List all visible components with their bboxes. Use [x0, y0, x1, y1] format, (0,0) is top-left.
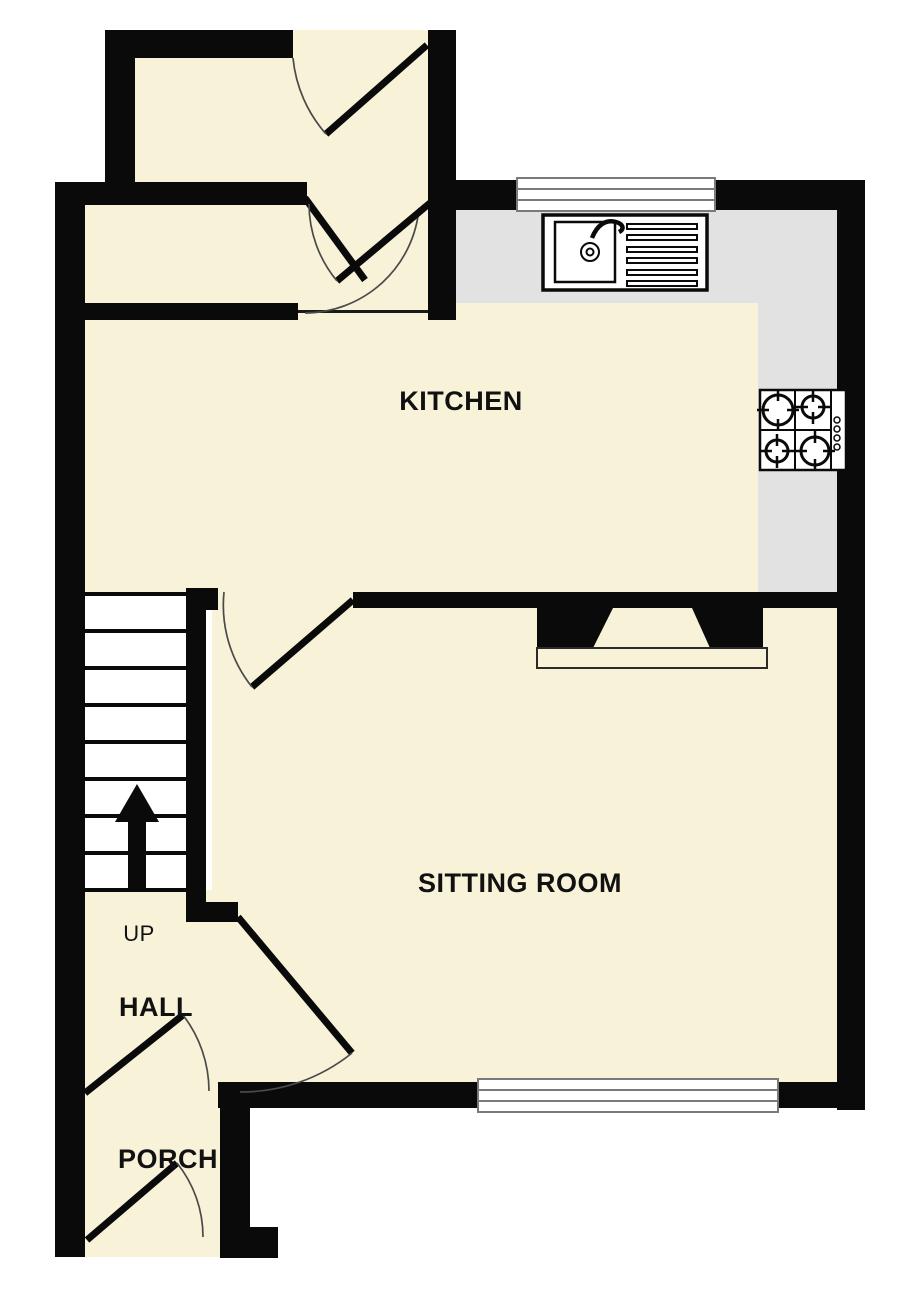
kitchen-window	[517, 178, 715, 211]
stairs-up-label: UP	[123, 921, 155, 946]
floorplan: KITCHEN SITTING ROOM HALL PORCH UP	[0, 0, 923, 1300]
room-label-sitting-room: SITTING ROOM	[418, 868, 622, 898]
four-burner-hob-icon	[757, 389, 846, 471]
room-label-hall: HALL	[119, 992, 193, 1022]
lobby-gap-floor	[307, 182, 428, 205]
floorplan-drawing: KITCHEN SITTING ROOM HALL PORCH UP	[0, 0, 923, 1300]
rear-door-gap-floor	[293, 30, 428, 58]
rear-room-floor	[135, 58, 428, 182]
hearth	[537, 648, 767, 668]
sink-with-drainer-icon	[543, 215, 707, 290]
staircase	[85, 592, 186, 892]
room-label-kitchen: KITCHEN	[399, 386, 523, 416]
room-label-porch: PORCH	[118, 1144, 218, 1174]
sitting-room-window	[478, 1079, 778, 1112]
